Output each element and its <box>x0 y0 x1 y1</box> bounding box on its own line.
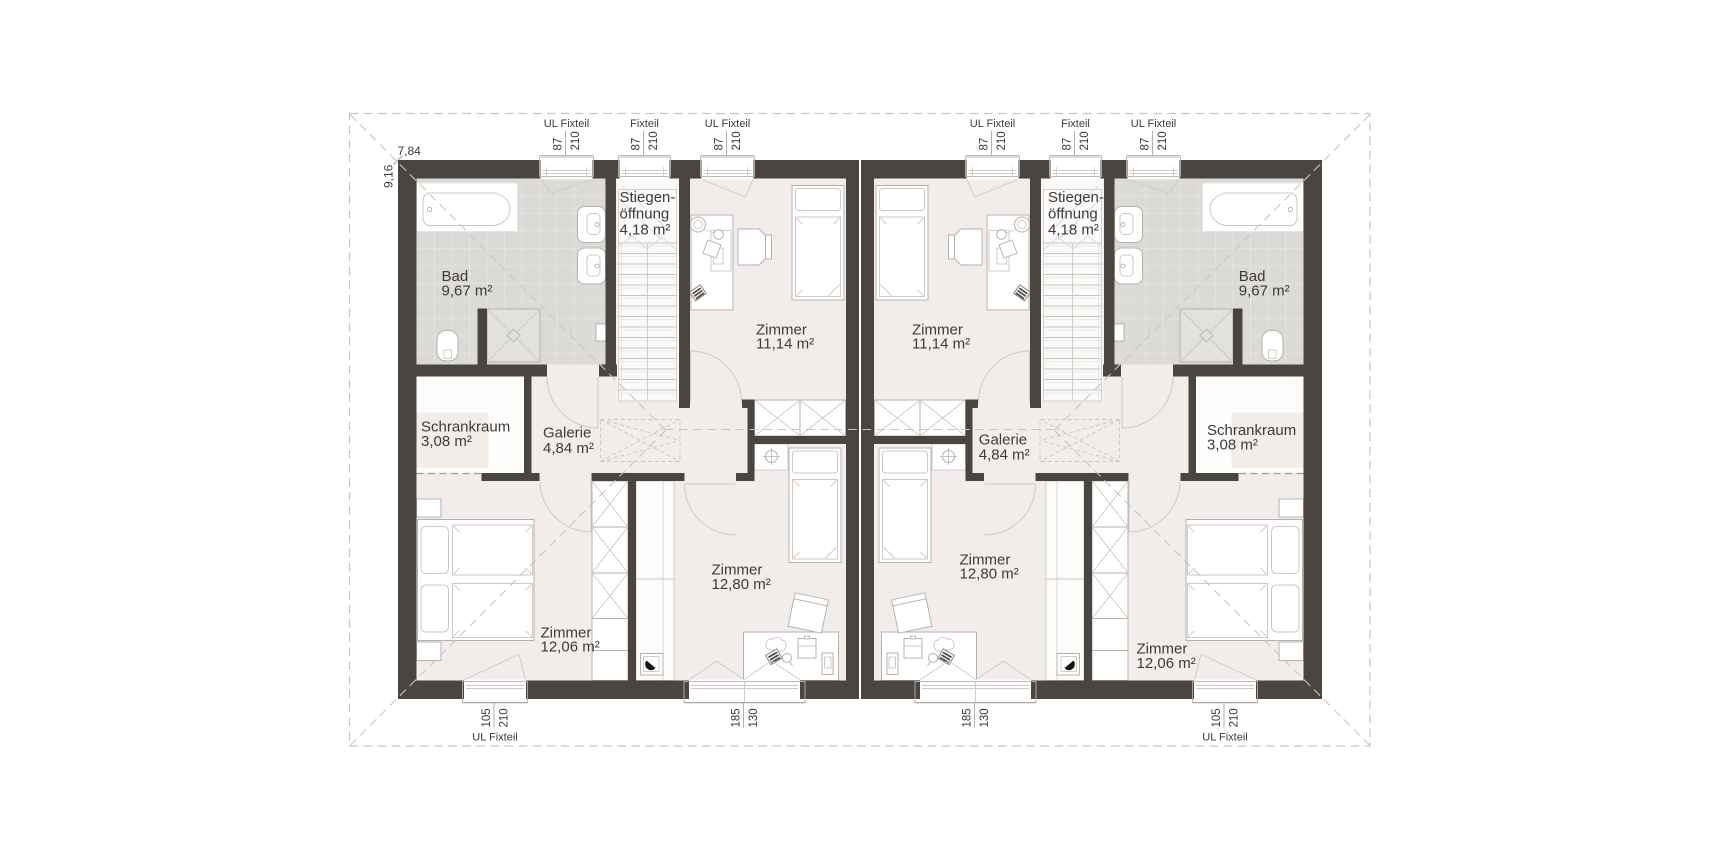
svg-text:öffnung: öffnung <box>620 206 670 223</box>
svg-text:87: 87 <box>979 138 991 151</box>
svg-text:12,06 m²: 12,06 m² <box>541 639 600 656</box>
svg-text:11,14 m²: 11,14 m² <box>912 336 970 353</box>
svg-text:4,84 m²: 4,84 m² <box>543 440 594 457</box>
svg-text:130: 130 <box>748 708 760 727</box>
svg-text:210: 210 <box>648 131 660 150</box>
svg-text:UL Fixteil: UL Fixteil <box>970 118 1015 130</box>
svg-text:210: 210 <box>570 131 582 150</box>
svg-text:210: 210 <box>1229 708 1241 727</box>
svg-text:87: 87 <box>1140 138 1152 151</box>
svg-text:87: 87 <box>553 138 565 151</box>
svg-text:UL Fixteil: UL Fixteil <box>472 732 517 744</box>
svg-text:9,67 m²: 9,67 m² <box>442 283 493 300</box>
svg-text:öffnung: öffnung <box>1048 206 1098 223</box>
svg-text:105: 105 <box>1211 708 1223 727</box>
svg-text:87: 87 <box>1062 138 1074 151</box>
svg-text:12,06 m²: 12,06 m² <box>1137 655 1196 672</box>
svg-text:11,14 m²: 11,14 m² <box>756 336 814 353</box>
svg-text:3,08 m²: 3,08 m² <box>421 433 472 450</box>
svg-text:4,18 m²: 4,18 m² <box>1048 222 1099 239</box>
svg-text:185: 185 <box>962 708 974 727</box>
svg-text:3,08 m²: 3,08 m² <box>1207 437 1258 454</box>
svg-text:12,80 m²: 12,80 m² <box>960 566 1019 583</box>
svg-text:UL Fixteil: UL Fixteil <box>705 118 750 130</box>
svg-text:4,18 m²: 4,18 m² <box>620 222 671 239</box>
svg-text:UL Fixteil: UL Fixteil <box>544 118 589 130</box>
svg-text:UL Fixteil: UL Fixteil <box>1131 118 1176 130</box>
svg-text:185: 185 <box>731 708 743 727</box>
svg-text:87: 87 <box>631 138 643 151</box>
svg-text:Galerie: Galerie <box>543 424 591 441</box>
svg-text:UL Fixteil: UL Fixteil <box>1202 732 1247 744</box>
svg-text:7,84: 7,84 <box>398 144 422 158</box>
svg-text:Stiegen-: Stiegen- <box>620 189 676 206</box>
svg-text:Stiegen-: Stiegen- <box>1048 189 1104 206</box>
svg-text:12,80 m²: 12,80 m² <box>712 576 771 593</box>
svg-text:Fixteil: Fixteil <box>630 118 659 130</box>
svg-text:210: 210 <box>731 131 743 150</box>
svg-text:4,84 m²: 4,84 m² <box>979 447 1030 464</box>
svg-text:210: 210 <box>499 708 511 727</box>
svg-text:105: 105 <box>481 708 493 727</box>
svg-text:9,16: 9,16 <box>382 164 396 188</box>
svg-text:130: 130 <box>979 708 991 727</box>
svg-text:210: 210 <box>1157 131 1169 150</box>
svg-text:Fixteil: Fixteil <box>1061 118 1090 130</box>
svg-text:210: 210 <box>996 131 1008 150</box>
svg-text:9,67 m²: 9,67 m² <box>1239 283 1290 300</box>
svg-text:210: 210 <box>1079 131 1091 150</box>
svg-text:87: 87 <box>714 138 726 151</box>
